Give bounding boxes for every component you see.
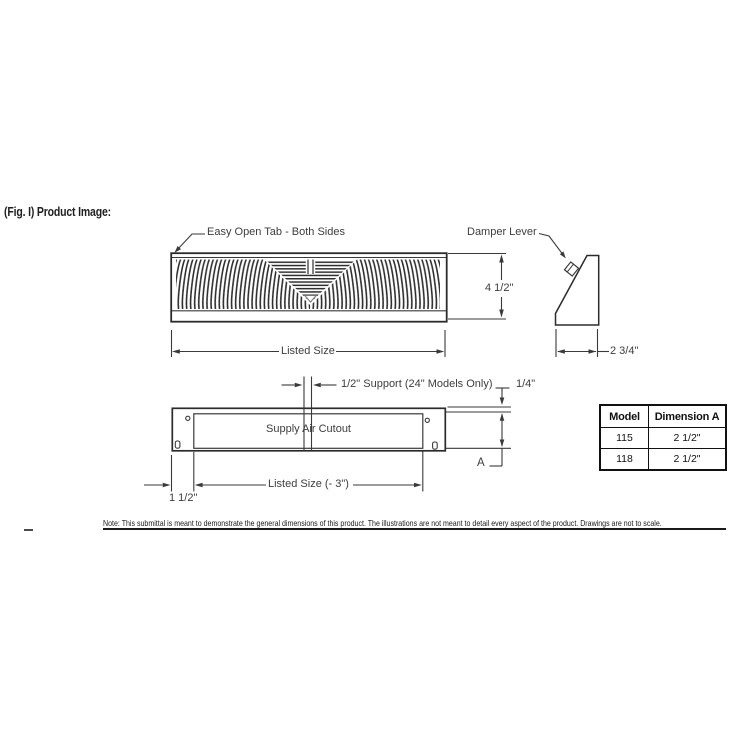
label-listed-size-minus-3: Listed Size (- 3") bbox=[268, 479, 349, 490]
label-damper-lever: Damper Lever bbox=[467, 227, 537, 238]
label-dim-1-4: 1/4" bbox=[516, 379, 535, 390]
mount-tab bbox=[175, 441, 180, 448]
table-row: 118 2 1/2" bbox=[600, 449, 726, 471]
label-easy-open-tab: Easy Open Tab - Both Sides bbox=[207, 227, 345, 238]
header-model: Model bbox=[600, 405, 649, 428]
cell-dimension-a: 2 1/2" bbox=[649, 428, 727, 449]
label-support: 1/2" Support (24" Models Only) bbox=[341, 379, 493, 390]
label-supply-air-cutout: Supply Air Cutout bbox=[194, 424, 423, 435]
table-row: 115 2 1/2" bbox=[600, 428, 726, 449]
label-dim-a: A bbox=[477, 458, 485, 470]
note: Note: This submittal is meant to demonst… bbox=[103, 518, 662, 528]
note-underline bbox=[103, 528, 726, 530]
easy-open-leader bbox=[177, 234, 205, 250]
screw-hole bbox=[425, 418, 429, 422]
label-dim-2-3-4: 2 3/4" bbox=[610, 346, 638, 357]
stray-mark bbox=[24, 529, 33, 531]
submittal-page: (Fig. I) Product Image: bbox=[0, 0, 730, 730]
cell-model: 115 bbox=[600, 428, 649, 449]
screw-hole bbox=[186, 416, 190, 420]
label-dim-1-1-2: 1 1/2" bbox=[169, 493, 197, 504]
cell-dimension-a: 2 1/2" bbox=[649, 449, 727, 471]
mount-tab bbox=[433, 442, 438, 449]
label-listed-size: Listed Size bbox=[281, 346, 335, 357]
table-header-row: Model Dimension A bbox=[600, 405, 726, 428]
side-view-drawing bbox=[556, 256, 599, 326]
label-dim-4-1-2: 4 1/2" bbox=[485, 283, 513, 294]
cell-model: 118 bbox=[600, 449, 649, 471]
damper-leader bbox=[539, 234, 564, 257]
spec-table: Model Dimension A 115 2 1/2" 118 2 1/2" bbox=[599, 404, 727, 471]
header-dimension-a: Dimension A bbox=[649, 405, 727, 428]
dimension-linework bbox=[0, 0, 730, 730]
